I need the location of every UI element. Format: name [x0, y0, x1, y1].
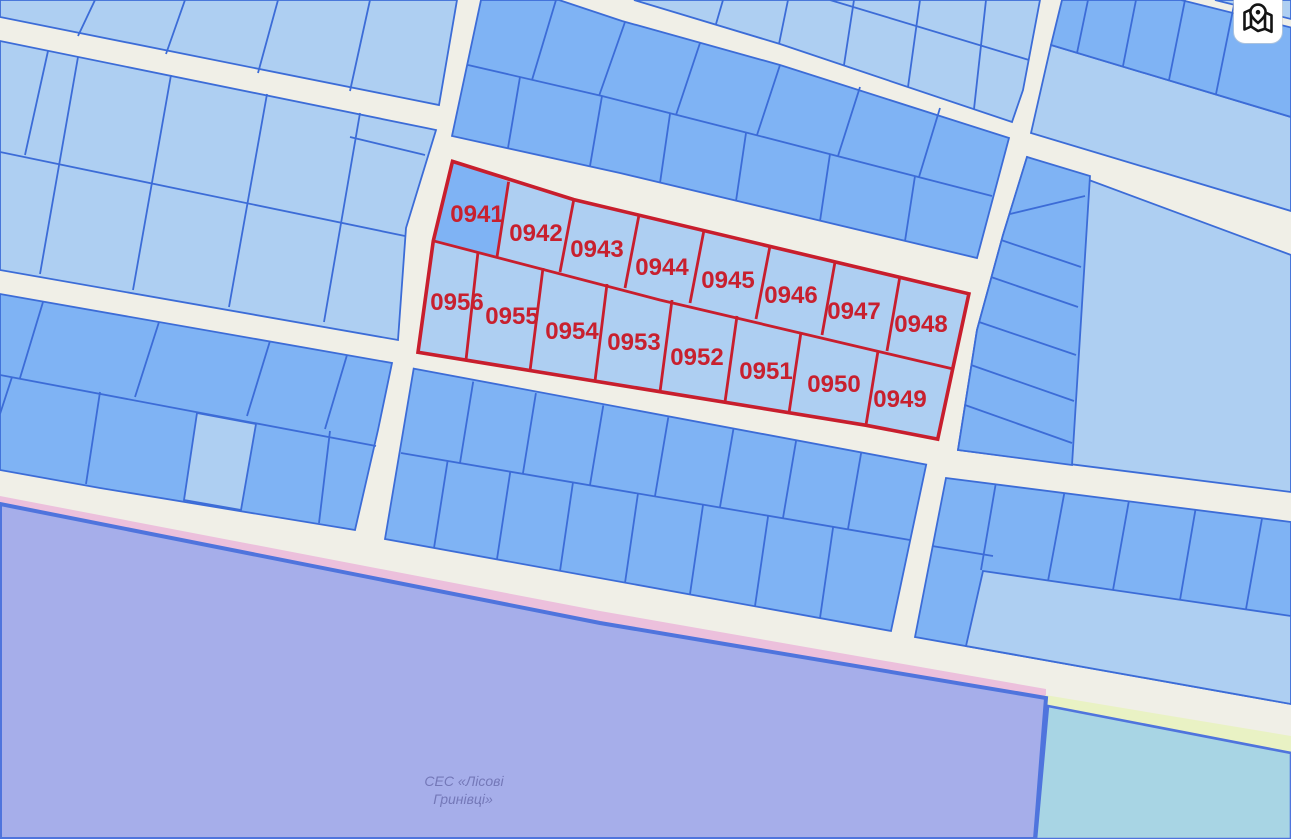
svg-text:0951: 0951 [739, 358, 792, 385]
svg-text:0944: 0944 [635, 254, 689, 281]
svg-text:0943: 0943 [570, 236, 623, 263]
svg-text:0948: 0948 [894, 311, 947, 338]
svg-text:0949: 0949 [873, 386, 926, 413]
svg-text:0954: 0954 [545, 318, 599, 345]
svg-text:0952: 0952 [670, 344, 723, 371]
svg-text:0956: 0956 [430, 289, 483, 316]
svg-text:Гринівці»: Гринівці» [433, 791, 493, 807]
svg-text:0950: 0950 [807, 371, 860, 398]
svg-text:0955: 0955 [485, 303, 538, 330]
svg-text:0946: 0946 [764, 282, 817, 309]
svg-text:0953: 0953 [607, 329, 660, 356]
svg-text:0945: 0945 [701, 267, 754, 294]
svg-text:0942: 0942 [509, 220, 562, 247]
svg-text:СЕС «Лісові: СЕС «Лісові [424, 773, 504, 789]
svg-text:0941: 0941 [450, 201, 503, 228]
svg-text:0947: 0947 [827, 298, 880, 325]
